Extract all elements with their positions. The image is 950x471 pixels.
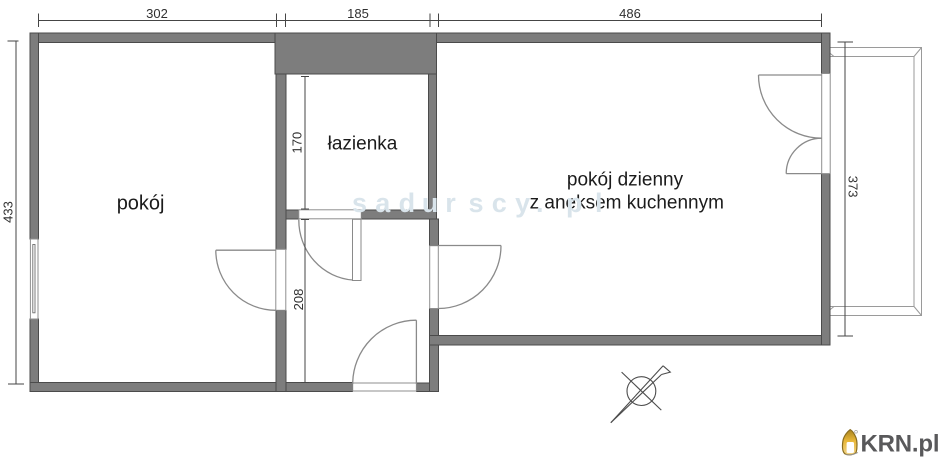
svg-text:KRN.pl: KRN.pl	[861, 431, 940, 458]
svg-text:l: l	[595, 188, 603, 218]
svg-text:170: 170	[289, 132, 304, 154]
svg-text:373: 373	[845, 176, 860, 198]
svg-text:302: 302	[146, 6, 168, 21]
svg-text:s: s	[469, 188, 484, 218]
svg-text:a: a	[375, 188, 391, 218]
svg-text:pokój dzienny: pokój dzienny	[567, 169, 684, 190]
svg-text:208: 208	[291, 289, 306, 311]
svg-text:p: p	[566, 188, 583, 218]
svg-text:r: r	[445, 188, 456, 218]
svg-text:y: y	[515, 188, 530, 218]
svg-text:łazienka: łazienka	[328, 134, 398, 155]
svg-text:c: c	[492, 188, 507, 218]
svg-text:.: .	[536, 188, 544, 218]
svg-text:z aneksem kuchennym: z aneksem kuchennym	[530, 192, 724, 213]
svg-text:u: u	[422, 188, 439, 218]
svg-text:486: 486	[619, 6, 641, 21]
svg-text:s: s	[352, 188, 367, 218]
svg-text:pokój: pokój	[117, 193, 165, 215]
svg-text:185: 185	[347, 6, 369, 21]
svg-text:d: d	[399, 188, 416, 218]
svg-text:433: 433	[1, 201, 16, 223]
